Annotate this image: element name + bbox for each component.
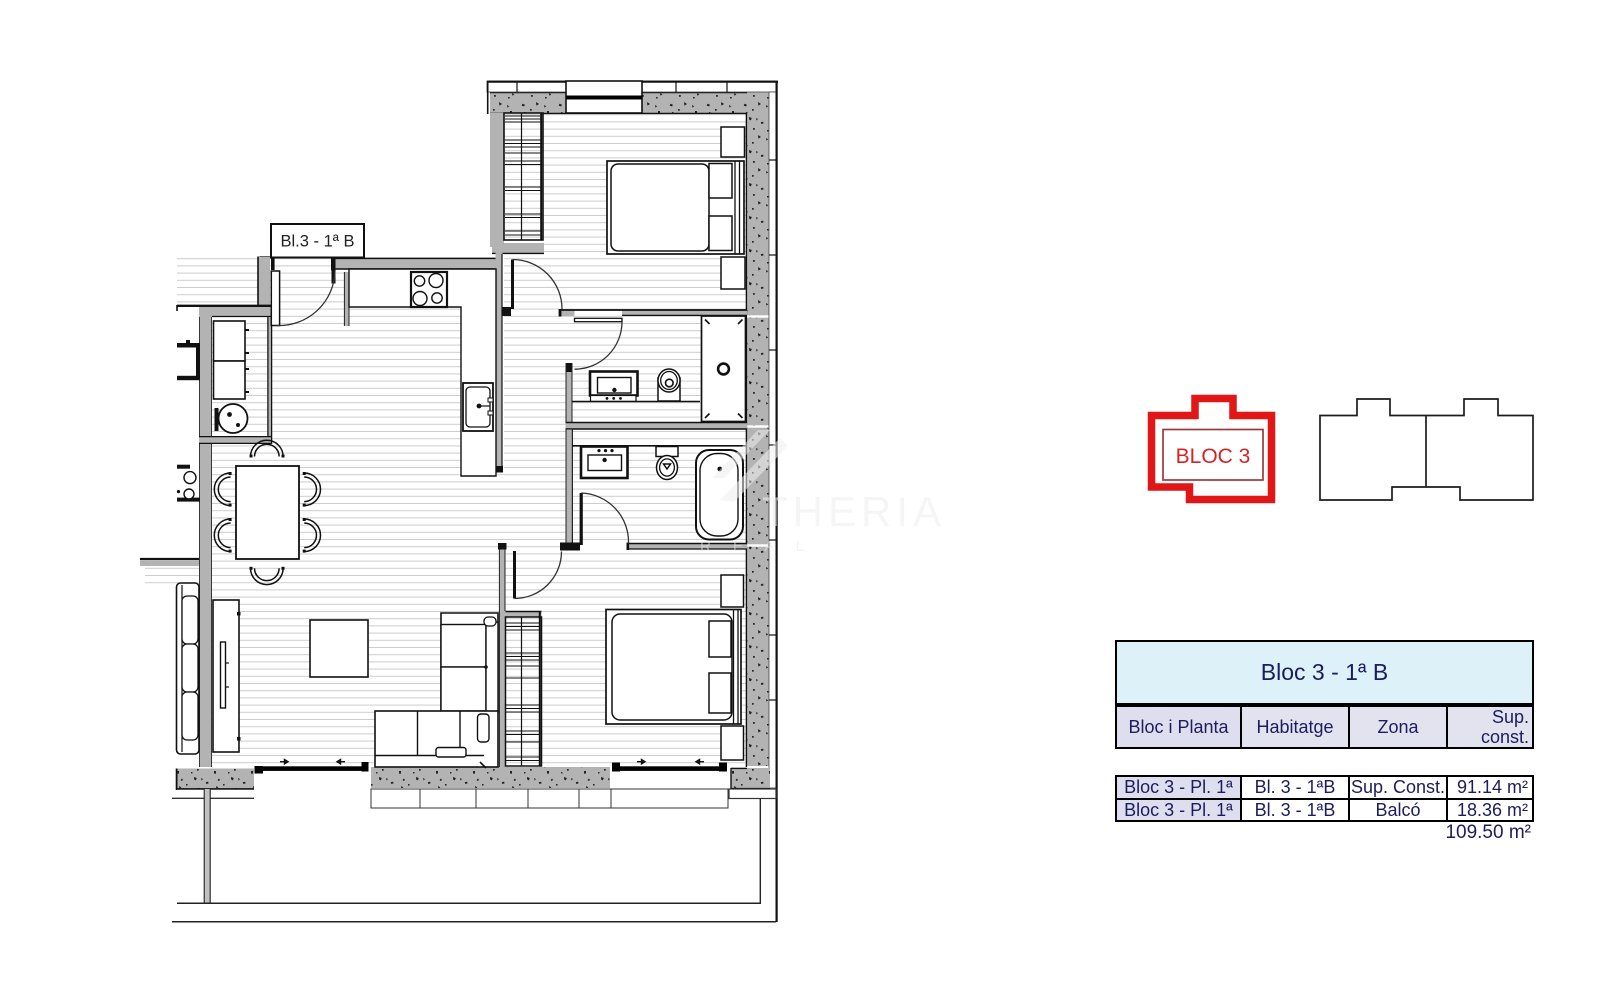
svg-text:THERIA: THERIA [762, 488, 946, 535]
svg-text:Bl.3 - 1ª B: Bl.3 - 1ª B [281, 233, 355, 251]
svg-text:BLOC 3: BLOC 3 [1176, 445, 1251, 468]
svg-text:R E A L: R E A L [700, 538, 813, 555]
